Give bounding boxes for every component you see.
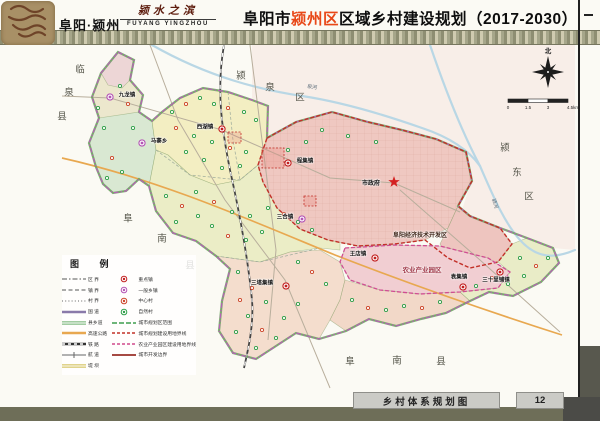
center-village-dot <box>250 286 253 289</box>
natural-village-dot <box>282 316 285 319</box>
legend-item: 村 界 <box>62 296 112 307</box>
natural-village-dot <box>248 214 251 217</box>
construction-site <box>304 196 316 206</box>
natural-village-dot <box>296 302 299 305</box>
center-village-dot <box>110 156 113 159</box>
seal-logo <box>1 1 55 45</box>
legend-item: 一般乡镇 <box>112 285 196 296</box>
legend-item: 镇 界 <box>62 285 112 296</box>
natural-village-dot <box>350 298 353 301</box>
footer-corner-block <box>563 397 600 421</box>
natural-village-dot <box>131 126 134 129</box>
natural-village-dot <box>274 336 277 339</box>
slogan-text: 颍水之滨 <box>120 2 216 18</box>
legend-symbol-yellow-double <box>62 362 86 370</box>
legend-title: 图 例 <box>70 257 196 270</box>
legend-label: 自然村 <box>138 308 152 315</box>
center-village-dot <box>212 200 215 203</box>
legend-label: 镇 界 <box>88 287 99 294</box>
natural-village-dot <box>120 170 123 173</box>
natural-village-dot <box>254 118 257 121</box>
natural-village-dot <box>346 134 349 137</box>
center-village-dot <box>282 212 285 215</box>
natural-village-dot <box>384 308 387 311</box>
legend-symbol-dot <box>62 297 86 305</box>
town-marker-core <box>499 271 502 274</box>
natural-village-dot <box>246 314 249 317</box>
slogan-divider <box>120 19 216 20</box>
natural-village-dot <box>310 228 313 231</box>
scalebar-segment <box>548 99 568 103</box>
natural-village-dot <box>296 260 299 263</box>
page: 九龙镇马寨乡西湖镇程集镇三合镇王店镇袁集镇三十里铺镇三塔集镇市政府阜阳经济技术开… <box>0 0 600 421</box>
natural-village-dot <box>244 150 247 153</box>
natural-village-dot <box>438 300 441 303</box>
natural-village-dot <box>266 206 269 209</box>
corner-dash <box>584 14 593 16</box>
natural-village-dot <box>324 282 327 285</box>
center-village-dot <box>238 298 241 301</box>
natural-village-dot <box>320 128 323 131</box>
brand-text: 阜阳·颍州 <box>59 15 120 34</box>
natural-village-dot <box>184 150 187 153</box>
natural-village-dot <box>174 220 177 223</box>
legend-symbol-darkred-solid <box>112 351 136 359</box>
legend-item: 县乡道 <box>62 317 112 328</box>
natural-village-dot <box>402 304 405 307</box>
legend-label: 高速公路 <box>88 330 107 337</box>
legend-label: 城市开发边界 <box>138 351 167 358</box>
legend-label: 农业产业园区建设用地界线 <box>138 341 196 348</box>
center-village-dot <box>180 204 183 207</box>
legend-label: 航 道 <box>88 351 99 358</box>
legend-item: 城市开发边界 <box>112 350 196 361</box>
legend-item: 堤 坝 <box>62 360 112 371</box>
legend-item: 城市规划建设用地界线 <box>112 328 196 339</box>
legend-symbol-center-village <box>112 297 136 305</box>
legend-label: 堤 坝 <box>88 362 99 369</box>
center-village-dot <box>420 306 423 309</box>
slogan-block: 颍水之滨 FUYANG YINGZHOU <box>120 2 216 27</box>
center-village-dot <box>366 306 369 309</box>
title-pre: 阜阳市 <box>243 11 291 28</box>
legend-label: 铁 路 <box>88 341 99 348</box>
legend-item: 自然村 <box>112 306 196 317</box>
natural-village-dot <box>220 166 223 169</box>
town-marker-core <box>374 257 377 260</box>
page-title: 阜阳市颍州区区域乡村建设规划（2017-2030） <box>243 7 578 29</box>
natural-village-dot <box>242 110 245 113</box>
legend-symbol-railway <box>62 340 86 348</box>
natural-village-dot <box>118 84 121 87</box>
slogan-en-text: FUYANG YINGZHOU <box>120 21 216 27</box>
north-label: 北 <box>545 45 552 55</box>
natural-village-dot <box>518 256 521 259</box>
construction-site <box>262 148 284 168</box>
legend-item: 高速公路 <box>62 328 112 339</box>
scalebar-segment <box>528 99 548 103</box>
legend-item: 国 道 <box>62 306 112 317</box>
natural-village-dot <box>105 176 108 179</box>
natural-village-dot <box>192 134 195 137</box>
natural-village-dot <box>196 214 199 217</box>
town-marker-core <box>462 286 465 289</box>
town-marker-core <box>109 96 112 99</box>
legend-label: 国 道 <box>88 308 99 315</box>
legend-symbol-pink-dash <box>112 340 136 348</box>
center-village-dot <box>490 276 493 279</box>
center-village-dot <box>226 234 229 237</box>
natural-village-dot <box>212 102 215 105</box>
center-village-dot <box>534 264 537 267</box>
map-sheet-title: 乡村体系规划图 <box>353 392 500 409</box>
scalebar-segment <box>508 99 528 103</box>
natural-village-dot <box>244 238 247 241</box>
center-village-dot <box>184 102 187 105</box>
legend-symbol-dashdot <box>62 275 86 283</box>
natural-village-dot <box>234 330 237 333</box>
natural-village-dot <box>374 140 377 143</box>
footer-band <box>0 407 600 421</box>
right-border-line <box>578 0 580 402</box>
natural-village-dot <box>202 158 205 161</box>
legend-label: 区 界 <box>88 276 99 283</box>
natural-village-dot <box>506 282 509 285</box>
natural-village-dot <box>474 284 477 287</box>
natural-village-dot <box>236 270 239 273</box>
town-marker-core <box>221 128 224 131</box>
legend-label: 村 界 <box>88 297 99 304</box>
legend: 图 例 区 界镇 界村 界国 道县乡道高速公路铁 路航 道堤 坝 重点镇一般乡镇… <box>62 255 196 375</box>
legend-symbol-orange-solid <box>62 329 86 337</box>
natural-village-dot <box>238 164 241 167</box>
legend-item: 区 界 <box>62 274 112 285</box>
legend-symbol-green-dash <box>112 319 136 327</box>
legend-symbol-purple-solid <box>62 308 86 316</box>
legend-label: 城市规划建设用地界线 <box>138 330 186 337</box>
natural-village-dot <box>546 256 549 259</box>
town-marker-core <box>141 142 144 145</box>
town-marker-core <box>287 162 290 165</box>
legend-label: 城市规划区范围 <box>138 319 172 326</box>
map-sheet-title-text: 乡村体系规划图 <box>383 394 471 408</box>
center-village-dot <box>174 126 177 129</box>
compass-center <box>547 71 550 74</box>
legend-label: 重点镇 <box>138 276 152 283</box>
natural-village-dot <box>304 140 307 143</box>
natural-village-dot <box>102 126 105 129</box>
natural-village-dot <box>230 210 233 213</box>
natural-village-dot <box>96 106 99 109</box>
title-highlight: 颍州区 <box>291 11 339 28</box>
center-village-dot <box>226 106 229 109</box>
legend-columns: 区 界镇 界村 界国 道县乡道高速公路铁 路航 道堤 坝 重点镇一般乡镇中心村自… <box>62 274 196 371</box>
legend-item: 城市规划区范围 <box>112 317 196 328</box>
natural-village-dot <box>522 274 525 277</box>
construction-site <box>228 132 241 143</box>
legend-item: 重点镇 <box>112 274 196 285</box>
legend-symbol-natural-village <box>112 308 136 316</box>
town-marker-core <box>285 285 288 288</box>
center-village-dot <box>126 102 129 105</box>
title-post: 区域乡村建设规划（2017-2030） <box>339 11 578 28</box>
legend-symbol-tick-line <box>62 351 86 359</box>
legend-point-items: 重点镇一般乡镇中心村自然村城市规划区范围城市规划建设用地界线农业产业园区建设用地… <box>112 274 196 371</box>
legend-line-items: 区 界镇 界村 界国 道县乡道高速公路铁 路航 道堤 坝 <box>62 274 112 371</box>
natural-village-dot <box>264 300 267 303</box>
natural-village-dot <box>260 230 263 233</box>
natural-village-dot <box>170 110 173 113</box>
natural-village-dot <box>194 190 197 193</box>
legend-label: 一般乡镇 <box>138 287 157 294</box>
legend-symbol-key <box>112 275 136 283</box>
natural-village-dot <box>210 224 213 227</box>
natural-village-dot <box>254 346 257 349</box>
legend-item: 中心村 <box>112 296 196 307</box>
natural-village-dot <box>210 140 213 143</box>
legend-item: 农业产业园区建设用地界线 <box>112 339 196 350</box>
center-village-dot <box>260 328 263 331</box>
legend-symbol-dash <box>62 286 86 294</box>
natural-village-dot <box>198 96 201 99</box>
seal-glyphs <box>1 1 55 45</box>
page-number-text: 12 <box>535 395 546 406</box>
legend-item: 铁 路 <box>62 339 112 350</box>
natural-village-dot <box>164 194 167 197</box>
natural-village-dot <box>286 148 289 151</box>
page-number: 12 <box>516 392 564 409</box>
center-village-dot <box>310 270 313 273</box>
legend-label: 县乡道 <box>88 319 102 326</box>
legend-item: 航 道 <box>62 350 112 361</box>
legend-symbol-red-dash <box>112 329 136 337</box>
legend-symbol-township <box>112 286 136 294</box>
town-marker-core <box>301 218 304 221</box>
legend-label: 中心村 <box>138 297 152 304</box>
center-village-dot <box>228 146 231 149</box>
legend-symbol-green-double <box>62 319 86 327</box>
